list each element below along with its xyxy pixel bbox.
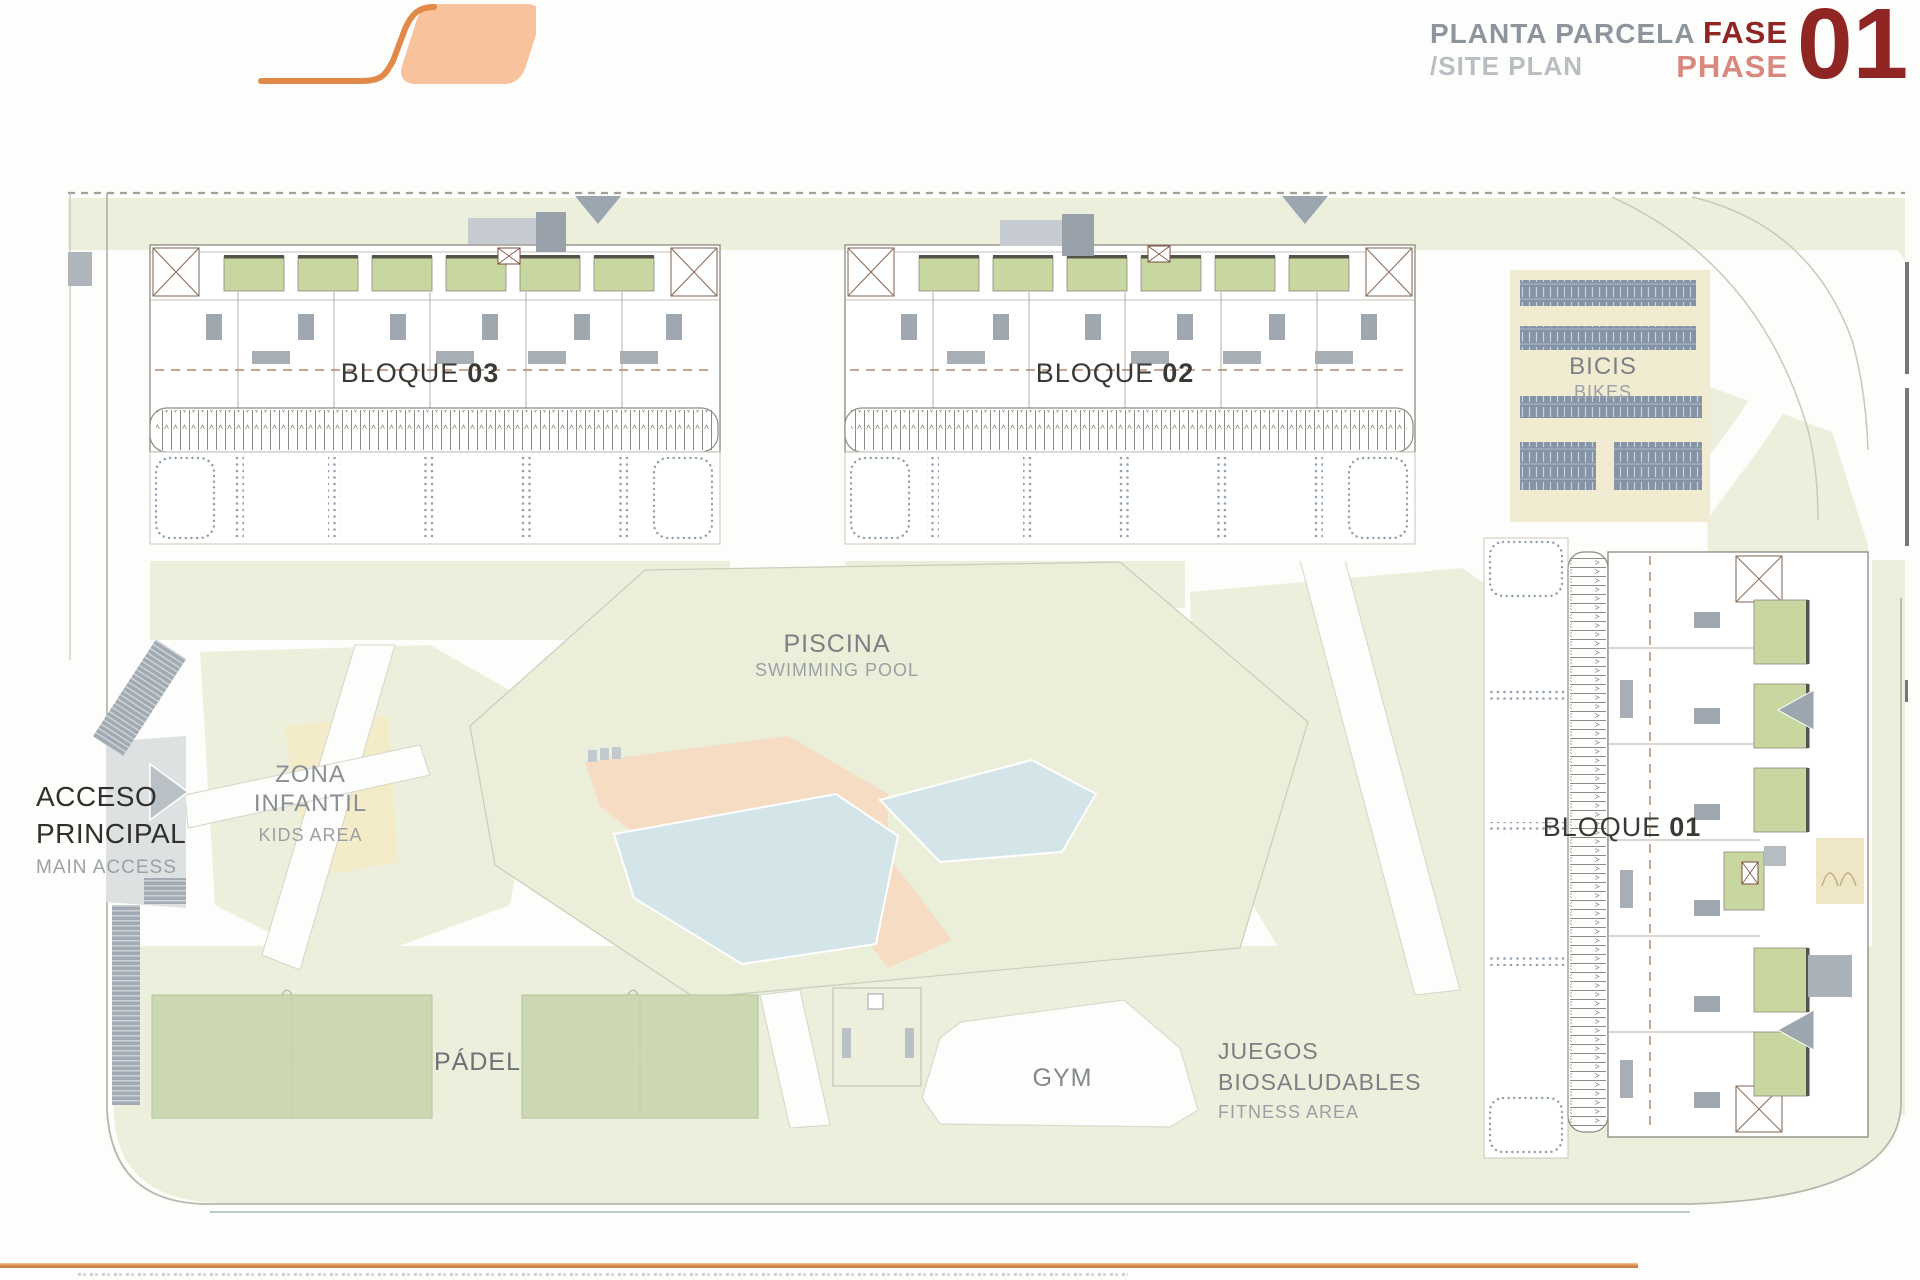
gym-label: GYM bbox=[1000, 1064, 1125, 1093]
pool-area bbox=[470, 562, 1308, 998]
padel-label: PÁDEL bbox=[400, 1048, 555, 1077]
fitness-area-label: JUEGOS BIOSALUDABLES FITNESS AREA bbox=[1218, 1036, 1498, 1123]
main-access-label: ACCESO PRINCIPAL MAIN ACCESS bbox=[36, 778, 216, 879]
bloque-02-parking bbox=[851, 410, 1407, 450]
bloque-03-label: BLOQUE03 bbox=[310, 358, 530, 389]
bloque-01-label: BLOQUE01 bbox=[1512, 812, 1732, 843]
site-plan-page: PLANTA PARCELA /SITE PLAN FASE PHASE 01 bbox=[0, 0, 1920, 1280]
bikes-label: BICIS BIKES bbox=[1528, 352, 1678, 403]
bloque-01-building bbox=[1484, 538, 1868, 1158]
footer-accent-rule bbox=[0, 1263, 1638, 1268]
bloque-02-label: BLOQUE02 bbox=[1005, 358, 1225, 389]
fine-print-illegible bbox=[78, 1273, 1128, 1276]
bloque-03-parking bbox=[156, 410, 712, 450]
kids-area-label: ZONA INFANTIL KIDS AREA bbox=[228, 760, 393, 846]
site-plan-drawing bbox=[0, 0, 1920, 1280]
pool-label: PISCINA SWIMMING POOL bbox=[732, 630, 942, 681]
